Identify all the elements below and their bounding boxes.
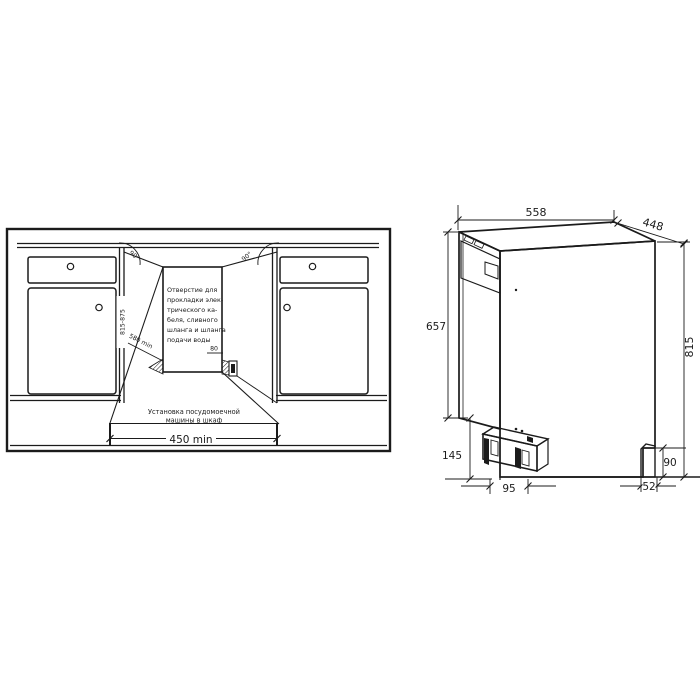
installation-diagram-svg: Отверстие для прокладки элек- трического…: [0, 0, 700, 700]
door-front: [28, 288, 116, 394]
angle-marks: 90° 90°: [119, 243, 279, 265]
door-front: [280, 288, 368, 394]
dim-hole-80-label: 80: [210, 346, 218, 353]
side-face: [500, 241, 655, 477]
dim-580min-label: 580 min: [128, 333, 154, 351]
dim-145-label: 145: [442, 450, 462, 462]
door-knob: [96, 304, 102, 310]
door-knob: [284, 304, 290, 310]
dim-657-label: 657: [426, 321, 446, 333]
dim-52-label: 52: [642, 481, 655, 493]
dim-door-height: 657: [426, 229, 468, 422]
caption-line-1: Установка посудомоечной: [148, 408, 240, 416]
dim-450min-label: 450 min: [169, 434, 212, 446]
dim-90-label: 90: [663, 457, 676, 469]
note-line-5: шланга и шланга: [167, 326, 226, 334]
cabinet-installation-diagram: Отверстие для прокладки элек- трического…: [7, 229, 390, 451]
dim-base-height: 145: [442, 415, 474, 483]
caption-line-2: машины в шкаф: [166, 417, 223, 425]
note-line-6: подачи воды: [167, 336, 211, 344]
installation-manual-page: Отверстие для прокладки элек- трического…: [0, 0, 700, 700]
dim-total-height: 815: [657, 240, 696, 481]
hose-box-leader: [237, 376, 277, 403]
hose-box-slot: [231, 364, 235, 373]
angle-left-label: 90°: [128, 249, 142, 262]
dim-95-label: 95: [502, 483, 515, 495]
cabinet-right: [280, 257, 368, 394]
side-rivet: [515, 289, 517, 291]
hatch-right: [222, 360, 229, 375]
niche-ceiling-lines: [124, 252, 277, 267]
countertop: [17, 244, 379, 248]
dim-815-875-label: 815-875: [119, 309, 126, 335]
dishwasher-dimensions-drawing: 558 448 657 815: [426, 205, 700, 495]
hatch-left: [149, 359, 163, 374]
drawer-front: [28, 257, 116, 283]
front-bracket: [483, 427, 548, 471]
note-line-3: трического ка-: [167, 306, 217, 314]
drawer-front: [280, 257, 368, 283]
handle-recess: [485, 262, 498, 279]
caption: Установка посудомоечной машины в шкаф: [148, 408, 240, 425]
note-line-1: Отверстие для: [167, 286, 217, 294]
dishwasher-body: [445, 222, 700, 480]
dim-niche-height: 815-875: [117, 296, 128, 348]
note-line-4: беля, сливного: [167, 316, 218, 324]
front-face: [459, 232, 500, 429]
note-line-2: прокладки элек-: [167, 296, 223, 304]
drawer-knob: [309, 263, 315, 269]
dim-rear-clearance: 90: [656, 445, 686, 481]
cabinet-left: [28, 257, 116, 394]
dim-815-label: 815: [683, 337, 696, 358]
dim-cabinet-width: 450 min: [107, 433, 281, 447]
dim-rear-foot: 52: [620, 477, 676, 493]
dim-front-foot-offset: 95: [461, 479, 556, 495]
drawer-knob: [67, 263, 73, 269]
bracket-right-face: [537, 439, 548, 471]
dim-558-label: 558: [526, 206, 547, 219]
cabinet-base-lines: [10, 396, 387, 401]
dim-448-label: 448: [641, 215, 665, 233]
